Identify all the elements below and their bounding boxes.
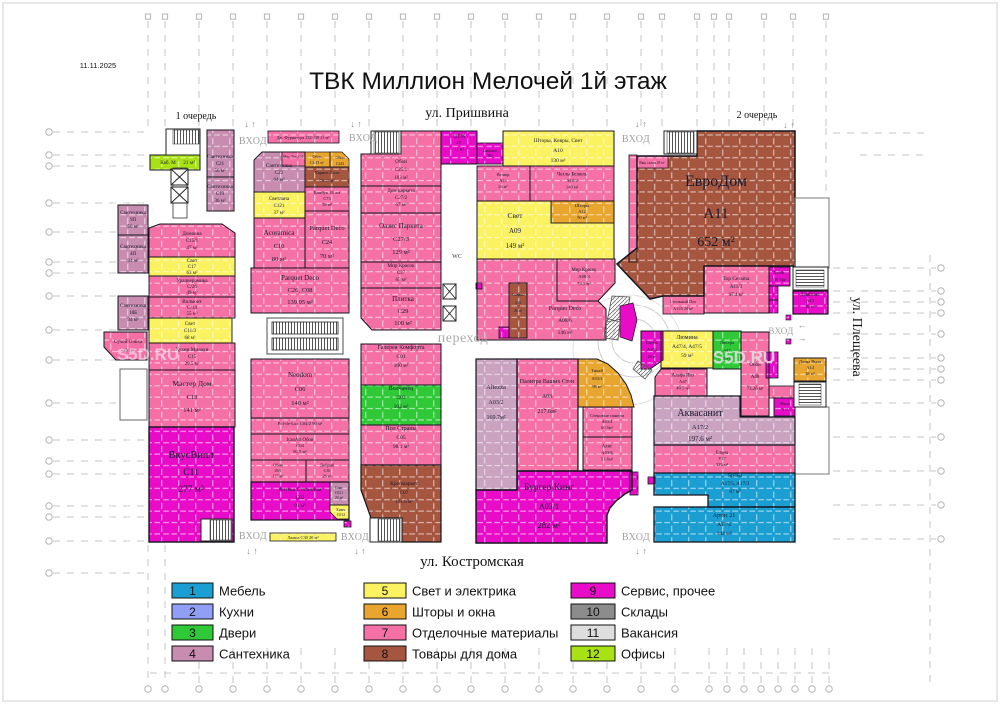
- svg-text:Камины: Камины: [511, 293, 525, 297]
- svg-text:Берёза: Берёза: [646, 340, 658, 345]
- svg-text:117 м²: 117 м²: [273, 474, 284, 479]
- svg-text:A11/3: A11/3: [730, 285, 743, 290]
- svg-text:C02: C02: [296, 495, 305, 501]
- svg-text:C03: C03: [396, 395, 405, 401]
- svg-text:ВХОД: ВХОД: [239, 531, 267, 542]
- svg-text:Люстра: Люстра: [720, 340, 734, 345]
- svg-text:Pol-de-Lux C04/2 90 м²: Pol-de-Lux C04/2 90 м²: [278, 421, 323, 426]
- svg-text:Мебель: Мебель: [219, 584, 266, 599]
- svg-text:Тикай: Тикай: [591, 368, 603, 373]
- svg-text:C21: C21: [216, 162, 225, 167]
- svg-text:A17/5, A17/3: A17/5, A17/3: [721, 481, 750, 487]
- svg-text:59 м²: 59 м²: [681, 353, 693, 359]
- svg-text:47 м²: 47 м²: [187, 245, 198, 251]
- svg-text:ВХОД: ВХОД: [622, 532, 650, 543]
- svg-text:87 м²: 87 м²: [729, 489, 741, 495]
- svg-text:A08/6: A08/6: [558, 318, 572, 324]
- svg-text:Parquet Deco: Parquet Deco: [309, 225, 344, 232]
- svg-text:C07: C07: [400, 490, 409, 496]
- svg-text:C8 28 м²: C8 28 м²: [319, 178, 335, 183]
- svg-text:91 м²: 91 м²: [294, 503, 306, 509]
- svg-text:26 м²: 26 м²: [514, 309, 523, 313]
- svg-text:A14: A14: [806, 365, 814, 370]
- svg-text:A47: A47: [679, 379, 688, 384]
- svg-text:C/14: C/14: [187, 306, 197, 311]
- svg-text:↓ ↑: ↓ ↑: [635, 119, 647, 129]
- svg-text:Плитка: Плитка: [392, 295, 415, 303]
- svg-text:C11/3: C11/3: [184, 329, 197, 334]
- svg-text:ВХОД: ВХОД: [768, 326, 793, 336]
- svg-text:Свет и электрика: Свет и электрика: [412, 584, 517, 599]
- svg-text:Волмонт: Волмонт: [182, 299, 202, 305]
- svg-text:50 м²: 50 м²: [577, 215, 587, 220]
- svg-text:Бургер Кинг: Бургер Кинг: [524, 483, 574, 493]
- svg-text:C19: C19: [216, 192, 225, 197]
- svg-text:переход: переход: [438, 331, 488, 346]
- svg-text:98.1 м²: 98.1 м²: [393, 444, 409, 450]
- svg-text:↓ ↑: ↓ ↑: [350, 119, 362, 129]
- svg-text:Склады: Склады: [621, 605, 668, 620]
- svg-text:Шторы, Ковры, Свет: Шторы, Ковры, Свет: [534, 138, 583, 144]
- svg-text:Уралкерамика: Уралкерамика: [176, 278, 208, 284]
- svg-text:C121: C121: [274, 204, 285, 209]
- svg-text:Пол Страны: Пол Страны: [385, 426, 416, 432]
- svg-text:197.6 м²: 197.6 м²: [688, 435, 712, 443]
- svg-text:↓ ↑: ↓ ↑: [783, 120, 795, 130]
- svg-text:146 м²: 146 м²: [558, 330, 573, 336]
- svg-text:Алис: Алис: [602, 445, 613, 450]
- svg-text:277 м²: 277 м²: [178, 485, 204, 495]
- svg-text:C6 15 м²: C6 15 м²: [310, 161, 325, 165]
- svg-text:Велюр: Велюр: [497, 172, 510, 177]
- svg-text:100 м²: 100 м²: [394, 363, 409, 369]
- svg-text:140 м²: 140 м²: [291, 400, 308, 407]
- svg-text:64 м²: 64 м²: [274, 177, 285, 183]
- svg-text:217.6м²: 217.6м²: [537, 409, 556, 415]
- svg-text:A48: A48: [751, 375, 760, 380]
- svg-text:ВХОД: ВХОД: [622, 134, 650, 145]
- svg-text:58 м²: 58 м²: [322, 202, 332, 207]
- svg-text:302: 302: [487, 154, 493, 158]
- svg-text:Parquet Deco: Parquet Deco: [549, 306, 582, 312]
- svg-text:29/1: 29/1: [274, 468, 281, 473]
- svg-text:Стеновые панели: Стеновые панели: [590, 413, 625, 418]
- svg-text:Parquet Deco: Parquet Deco: [281, 274, 319, 282]
- svg-text:Сантехника: Сантехника: [207, 184, 234, 190]
- svg-text:Сервис, прочее: Сервис, прочее: [621, 584, 715, 599]
- svg-text:C15/1: C15/1: [186, 239, 199, 244]
- svg-text:67 м²: 67 м²: [396, 202, 407, 208]
- svg-text:7: 7: [382, 626, 389, 640]
- svg-text:98 м²: 98 м²: [592, 384, 602, 389]
- svg-text:ул. Костромская: ул. Костромская: [420, 554, 524, 570]
- svg-text:Альфа Пол: Альфа Пол: [672, 374, 695, 379]
- svg-text:A03/2: A03/2: [489, 400, 504, 406]
- svg-text:130 м²: 130 м²: [551, 158, 566, 164]
- svg-text:А11: А11: [703, 206, 728, 222]
- svg-text:21 м²: 21 м²: [183, 160, 195, 166]
- svg-text:C29: C29: [398, 308, 409, 315]
- svg-text:ТВК Миллион Мелочей 1й этаж: ТВК Миллион Мелочей 1й этаж: [309, 68, 667, 95]
- svg-text:6: 6: [382, 605, 389, 619]
- svg-text:Шторы: Шторы: [575, 203, 589, 208]
- svg-text:Сантехника: Сантехника: [207, 154, 234, 160]
- svg-text:C25/1: C25/1: [395, 168, 408, 173]
- svg-text:C73: C73: [323, 196, 331, 201]
- svg-text:26 м²: 26 м²: [498, 184, 508, 189]
- svg-text:11: 11: [587, 626, 600, 640]
- svg-text:67.4 м²: 67.4 м²: [729, 292, 744, 298]
- svg-text:246: 246: [515, 301, 521, 305]
- svg-text:ВХОД: ВХОД: [341, 532, 369, 543]
- svg-text:1 очередь: 1 очередь: [176, 111, 217, 122]
- svg-text:C/26: C/26: [187, 285, 197, 290]
- svg-text:Обои: Обои: [335, 155, 345, 160]
- svg-text:СДЭК: СДЭК: [453, 135, 467, 140]
- svg-text:34 м²: 34 м²: [128, 317, 139, 323]
- svg-text:Acoramica: Acoramica: [264, 229, 296, 237]
- svg-text:Офисы: Офисы: [621, 647, 665, 662]
- svg-text:141 м²: 141 м²: [183, 407, 200, 414]
- svg-text:ул. Пришвина: ул. Пришвина: [425, 106, 509, 121]
- svg-text:28 м²: 28 м²: [805, 304, 816, 309]
- svg-text:Altezza: Altezza: [486, 384, 506, 391]
- svg-text:70 м²: 70 м²: [320, 253, 334, 260]
- svg-text:A16: A16: [499, 178, 506, 183]
- svg-text:2 очередь: 2 очередь: [737, 110, 778, 121]
- svg-text:A17/4: A17/4: [717, 522, 731, 528]
- svg-text:9: 9: [590, 584, 597, 598]
- svg-text:2У: 2У: [456, 140, 462, 145]
- svg-text:Банкомат: Банкомат: [483, 149, 498, 153]
- svg-text:652 м²: 652 м²: [697, 235, 735, 250]
- svg-text:У17: У17: [718, 456, 727, 461]
- svg-text:60.5м²: 60.5м²: [601, 425, 613, 430]
- svg-text:C27/3: C27/3: [393, 236, 409, 243]
- svg-text:Товары для дома: Товары для дома: [412, 647, 518, 662]
- svg-text:A10: A10: [553, 148, 563, 154]
- svg-text:←: ←: [798, 320, 807, 330]
- svg-text:A03/1: A03/1: [539, 502, 559, 511]
- svg-text:A10/2: A10/2: [566, 178, 578, 183]
- svg-text:C36: C36: [324, 468, 331, 473]
- svg-text:Обои: Обои: [395, 158, 407, 165]
- svg-text:Свет: Свет: [507, 211, 523, 220]
- svg-text:↓ ↑: ↓ ↑: [635, 546, 647, 556]
- svg-text:Добрый: Добрый: [320, 463, 335, 468]
- svg-text:140 м²: 140 м²: [566, 185, 579, 190]
- svg-text:Сантехника: Сантехника: [120, 303, 147, 309]
- svg-text:Вакансия: Вакансия: [621, 626, 678, 641]
- svg-text:49.5 м²: 49.5 м²: [676, 386, 690, 391]
- svg-text:A03/4: A03/4: [602, 419, 614, 424]
- svg-text:Neodom: Neodom: [288, 371, 313, 379]
- svg-text:C26, C08: C26, C08: [288, 287, 313, 294]
- svg-text:20 м²: 20 м²: [335, 496, 344, 500]
- svg-text:56 м²: 56 м²: [128, 224, 139, 230]
- svg-text:C13: C13: [187, 394, 198, 401]
- svg-text:Обои: Обои: [273, 463, 283, 468]
- svg-text:Мир Красок: Мир Красок: [571, 268, 597, 273]
- svg-text:11.11.2025: 11.11.2025: [80, 61, 116, 70]
- svg-text:Тор Cerama: Тор Cerama: [723, 276, 750, 282]
- svg-text:C10: C10: [274, 243, 285, 250]
- svg-text:Сухой Ольха: Сухой Ольха: [114, 338, 143, 345]
- svg-text:Обои: Обои: [312, 154, 322, 159]
- svg-text:80.5 м²: 80.5 м²: [293, 449, 307, 454]
- svg-text:A13: A13: [806, 298, 815, 303]
- svg-text:S5D.RU: S5D.RU: [713, 348, 775, 367]
- svg-text:143 м²: 143 м²: [717, 531, 732, 537]
- svg-text:56 м²: 56 м²: [215, 168, 226, 174]
- svg-text:ВХОД: ВХОД: [349, 133, 377, 144]
- svg-text:37 м²: 37 м²: [274, 210, 285, 216]
- svg-text:34 м²: 34 м²: [128, 258, 139, 264]
- svg-text:C11: C11: [183, 468, 199, 478]
- svg-text:Галерея Комфорта: Галерея Комфорта: [377, 344, 425, 351]
- svg-text:51.6м²: 51.6м²: [601, 457, 614, 462]
- svg-text:5: 5: [382, 584, 389, 598]
- svg-text:→: →: [798, 333, 807, 343]
- svg-text:111.6 м²: 111.6 м²: [395, 499, 413, 505]
- svg-text:ул. Плещеева: ул. Плещеева: [849, 297, 864, 377]
- svg-text:10: 10: [586, 605, 600, 619]
- svg-text:3: 3: [189, 626, 196, 640]
- svg-text:A12: A12: [578, 209, 586, 214]
- svg-text:A15: A15: [782, 408, 789, 412]
- svg-text:Светлана: Светлана: [269, 196, 290, 202]
- svg-text:169.7м²: 169.7м²: [486, 415, 505, 421]
- svg-text:↓ ↑: ↓ ↑: [354, 546, 366, 556]
- svg-text:Чехлы Белюль: Чехлы Белюль: [557, 173, 588, 178]
- svg-text:A47/3: A47/3: [647, 347, 657, 352]
- svg-text:73.5 м²: 73.5 м²: [577, 281, 591, 286]
- svg-text:C021: C021: [335, 491, 343, 495]
- svg-text:Люмина: Люмина: [676, 335, 698, 341]
- svg-text:Сант.: Сант.: [335, 486, 344, 490]
- svg-text:A09: A09: [509, 227, 522, 235]
- svg-text:Каб. М: Каб. М: [160, 159, 176, 166]
- svg-text:A03: A03: [542, 394, 552, 400]
- svg-text:4: 4: [189, 647, 196, 661]
- svg-text:Отделочные материалы: Отделочные материалы: [412, 626, 558, 641]
- svg-text:8: 8: [382, 647, 389, 661]
- svg-text:A08/3: A08/3: [578, 274, 590, 279]
- svg-text:Мыло: Мыло: [780, 402, 790, 406]
- svg-text:C04: C04: [296, 443, 304, 448]
- svg-text:C27/2: C27/2: [395, 196, 408, 201]
- svg-text:325 м²: 325 м²: [716, 462, 729, 467]
- svg-text:Двери: Двери: [219, 626, 256, 641]
- svg-text:Артис 21: Артис 21: [713, 513, 736, 519]
- svg-text:Свет: Свет: [187, 258, 198, 264]
- svg-text:Бамбук 18 лм: Бамбук 18 лм: [314, 190, 340, 195]
- svg-text:36 м²: 36 м²: [215, 198, 226, 204]
- svg-text:ЕвроДом: ЕвроДом: [685, 173, 747, 190]
- svg-text:49 м²: 49 м²: [187, 290, 198, 296]
- svg-text:Мас.Тех. C4: Мас.Тех. C4: [283, 155, 303, 159]
- svg-text:129 м²: 129 м²: [392, 249, 409, 256]
- svg-text:68 м²: 68 м²: [185, 335, 196, 341]
- svg-text:11 м²: 11 м²: [454, 147, 464, 152]
- svg-text:A03/6: A03/6: [601, 450, 613, 455]
- svg-text:80 м²: 80 м²: [272, 256, 286, 263]
- svg-text:100 м²: 100 м²: [394, 320, 411, 327]
- svg-text:28 м²: 28 м²: [805, 371, 815, 376]
- svg-text:Сантехника: Сантехника: [266, 163, 293, 169]
- svg-text:139.95 м²: 139.95 м²: [287, 299, 313, 306]
- svg-text:1: 1: [189, 584, 196, 598]
- svg-text:Сантехника: Сантехника: [219, 647, 291, 662]
- svg-text:↓ ↑: ↓ ↑: [246, 546, 258, 556]
- svg-text:Волчанец: Волчанец: [389, 386, 414, 392]
- svg-text:26 м²: 26 м²: [323, 474, 333, 479]
- svg-text:2: 2: [189, 605, 196, 619]
- svg-text:Оазис Паркета: Оазис Паркета: [379, 222, 424, 230]
- svg-text:A03/3: A03/3: [592, 376, 604, 381]
- svg-text:73.26 м²: 73.26 м²: [747, 386, 764, 392]
- svg-text:Дж. Фурнитура 132-138 21 м²: Дж. Фурнитура 132-138 21 м²: [277, 135, 331, 140]
- svg-text:Крепмаркет: Крепмаркет: [390, 481, 418, 487]
- svg-text:C22: C22: [275, 171, 284, 176]
- svg-text:C24: C24: [322, 239, 334, 246]
- svg-text:282 м²: 282 м²: [538, 520, 561, 530]
- svg-text:A11/5 28 м²: A11/5 28 м²: [673, 306, 693, 311]
- svg-text:Хобби: Хобби: [774, 270, 786, 275]
- svg-text:Шторы и окна: Шторы и окна: [412, 605, 496, 620]
- svg-text:ВХОД: ВХОД: [239, 136, 267, 147]
- svg-text:12: 12: [586, 647, 600, 661]
- svg-text:WC: WC: [452, 254, 462, 260]
- svg-text:29.5 м²: 29.5 м²: [185, 361, 200, 367]
- svg-text:A47/4, A47/5: A47/4, A47/5: [672, 344, 702, 350]
- svg-text:Кухни Милахи: Кухни Милахи: [176, 347, 209, 353]
- svg-text:149 м²: 149 м²: [506, 242, 525, 250]
- svg-text:Стильный Пол: Стильный Пол: [670, 299, 696, 304]
- svg-text:Аптека Столичная: Аптека Столичная: [278, 487, 322, 493]
- svg-text:4П: 4П: [130, 252, 137, 257]
- svg-text:Палитра Ваших Стен: Палитра Ваших Стен: [520, 379, 575, 385]
- svg-text:C17: C17: [188, 265, 197, 270]
- svg-text:C06: C06: [295, 386, 307, 393]
- svg-text:↓ ↑: ↓ ↑: [244, 119, 256, 129]
- svg-text:A17/2: A17/2: [692, 424, 708, 431]
- svg-text:C012: C012: [337, 513, 345, 517]
- svg-text:C15: C15: [188, 355, 197, 360]
- svg-text:Дом паркета: Дом паркета: [387, 188, 415, 194]
- svg-text:Свет: Свет: [185, 321, 196, 327]
- svg-text:Мир Красок: Мир Красок: [387, 263, 415, 269]
- svg-text:ВкусВилл: ВкусВилл: [169, 450, 214, 461]
- svg-text:C01: C01: [396, 354, 405, 360]
- svg-text:C37: C37: [397, 271, 406, 276]
- svg-text:А39 13м²: А39 13м²: [772, 278, 788, 282]
- svg-text:C243: C243: [336, 162, 344, 166]
- svg-text:65 м²: 65 м²: [396, 277, 407, 283]
- svg-text:Химч.: Химч.: [336, 508, 346, 512]
- svg-text:55 м²: 55 м²: [187, 311, 198, 317]
- svg-text:Кухни: Кухни: [219, 605, 254, 620]
- svg-text:Мастер Дом: Мастер Дом: [172, 379, 211, 388]
- svg-text:C05: C05: [396, 435, 405, 441]
- svg-text:Stylist: Stylist: [728, 473, 743, 479]
- svg-text:Дамы Вила: Дамы Вила: [799, 359, 821, 364]
- svg-text:63 м²: 63 м²: [187, 270, 198, 276]
- svg-text:S5D.RU: S5D.RU: [117, 345, 179, 364]
- svg-text:Сантехника: Сантехника: [120, 244, 147, 250]
- svg-text:26 м²: 26 м²: [648, 354, 658, 359]
- svg-text:Домовна: Домовна: [182, 231, 202, 237]
- svg-text:102 м²: 102 м²: [394, 404, 409, 410]
- svg-text:Сантехника: Сантехника: [120, 210, 147, 216]
- svg-text:Ваш салон 28 м²: Ваш салон 28 м²: [639, 161, 664, 165]
- svg-text:Лампа C30 20 м²: Лампа C30 20 м²: [287, 535, 319, 540]
- svg-text:Карниз Холл: Карниз Холл: [315, 170, 340, 175]
- svg-text:103 м²: 103 м²: [394, 175, 408, 181]
- svg-text:9П: 9П: [130, 218, 137, 223]
- svg-text:Аквасанит: Аквасанит: [677, 408, 723, 419]
- svg-text:18Б: 18Б: [129, 311, 137, 316]
